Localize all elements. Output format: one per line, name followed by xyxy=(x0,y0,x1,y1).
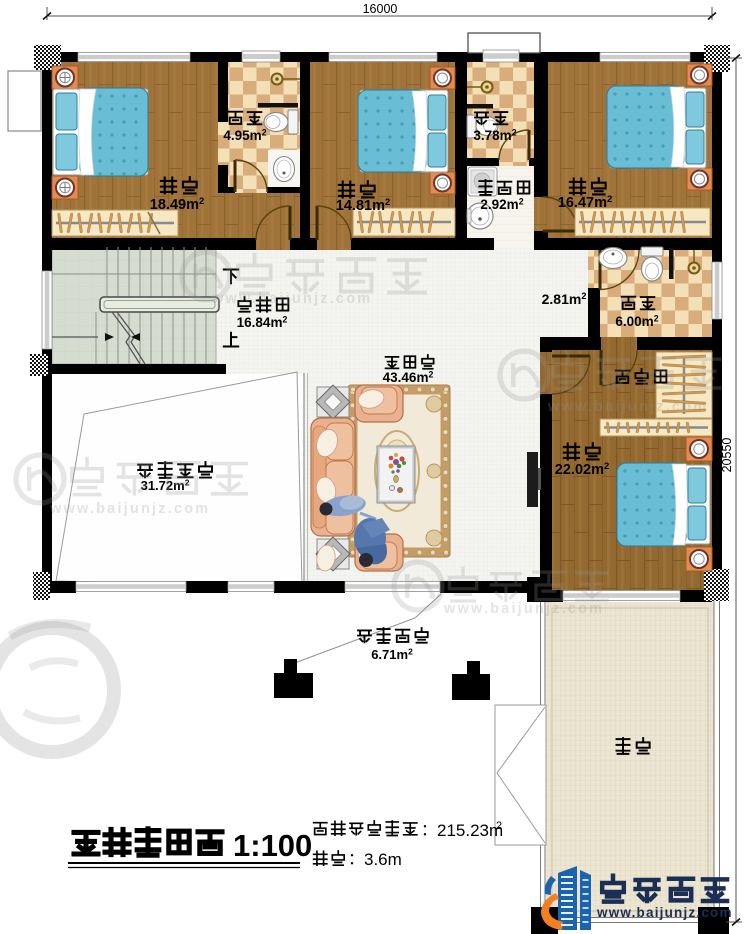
svg-text:215.23m: 215.23m xyxy=(437,821,503,840)
svg-text:www.baijunjz.com: www.baijunjz.com xyxy=(211,291,372,307)
svg-text:www.baijunjz.com: www.baijunjz.com xyxy=(443,601,604,617)
svg-text:16.84m2: 16.84m2 xyxy=(237,314,288,330)
svg-text:：: ： xyxy=(348,851,364,868)
svg-text:2: 2 xyxy=(496,820,502,832)
svg-text:20550: 20550 xyxy=(720,438,734,473)
svg-text:www.baijunjz.com: www.baijunjz.com xyxy=(596,905,733,920)
svg-text:3.78m2: 3.78m2 xyxy=(473,127,516,143)
svg-text:16000: 16000 xyxy=(363,2,398,16)
svg-text:1:100: 1:100 xyxy=(233,828,312,863)
svg-text:2.81m2: 2.81m2 xyxy=(542,291,587,307)
svg-text:2.92m2: 2.92m2 xyxy=(480,196,523,212)
svg-text:4.95m2: 4.95m2 xyxy=(223,127,266,143)
svg-text:18.49m2: 18.49m2 xyxy=(150,195,204,213)
svg-text:43.46m2: 43.46m2 xyxy=(383,369,434,385)
svg-text:14.81m2: 14.81m2 xyxy=(336,196,390,214)
svg-text:www.baijunjz.com: www.baijunjz.com xyxy=(49,501,210,517)
svg-text:3.6m: 3.6m xyxy=(364,850,402,869)
svg-text:6.71m2: 6.71m2 xyxy=(371,646,413,662)
svg-text:6.00m2: 6.00m2 xyxy=(615,313,658,329)
svg-text:16.47m2: 16.47m2 xyxy=(558,193,612,211)
svg-text:22.02m2: 22.02m2 xyxy=(555,460,609,478)
svg-text:：: ： xyxy=(421,822,437,839)
svg-text:www.baijunjz.com: www.baijunjz.com xyxy=(547,399,708,415)
